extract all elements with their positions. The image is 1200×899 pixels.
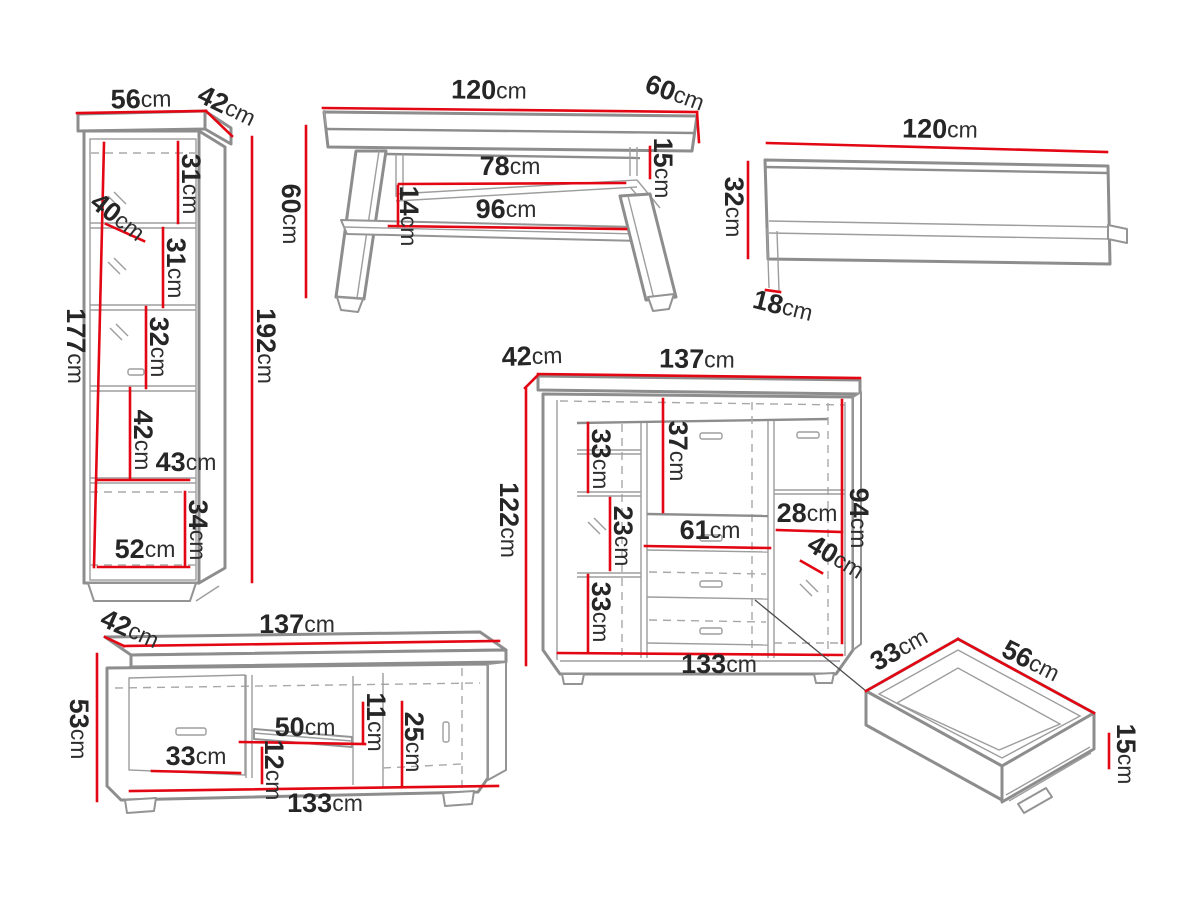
dim-unit: cm bbox=[304, 611, 335, 637]
dim-value: 37 bbox=[663, 421, 693, 451]
cabinet-section2-label: 31cm bbox=[161, 238, 191, 299]
dim-value: 33 bbox=[586, 429, 616, 459]
dim-unit: cm bbox=[185, 530, 211, 561]
dim-value: 120 bbox=[902, 113, 948, 144]
dim-unit: cm bbox=[496, 527, 522, 558]
dim-value: 120 bbox=[451, 74, 497, 105]
diagram-page: 56cm 42cm 192cm 177cm 40cm 31cm 31cm 32c… bbox=[0, 0, 1200, 899]
table-shelf-gap-label: 14cm bbox=[394, 186, 424, 247]
sideboard-left-top-label: 33cm bbox=[586, 429, 616, 490]
cabinet-plinth-side bbox=[196, 586, 219, 601]
dim-value: 60 bbox=[276, 184, 306, 214]
dim-unit: cm bbox=[710, 517, 741, 543]
dim-value: 56 bbox=[110, 84, 141, 115]
cabinet-interior-height-label: 177cm bbox=[61, 308, 91, 384]
dim-value: 53 bbox=[64, 699, 94, 729]
dim-value: 42 bbox=[128, 410, 158, 440]
dim-value: 137 bbox=[659, 343, 705, 374]
dim-value: 96 bbox=[476, 194, 506, 224]
table-width-label: 120cm bbox=[451, 74, 527, 105]
dim-unit: cm bbox=[506, 196, 537, 222]
tvstand-width-label: 137cm bbox=[259, 609, 335, 639]
dim-unit: cm bbox=[665, 451, 691, 482]
table-upper-shelf-label: 78cm bbox=[480, 151, 541, 181]
cabinet-plinth bbox=[88, 583, 196, 601]
table-top-gap-label: 15cm bbox=[648, 138, 678, 199]
table-depth-label: 60cm bbox=[641, 69, 708, 118]
dimension-line bbox=[399, 183, 625, 184]
dim-unit: cm bbox=[846, 518, 872, 549]
dim-unit: cm bbox=[650, 168, 676, 199]
dim-unit: cm bbox=[588, 612, 614, 643]
tv-stand-diagram: 42cm 137cm 53cm 33cm 50cm 11cm 25cm 12cm… bbox=[64, 603, 506, 818]
drawer-diagram: 33cm 56cm 15cm bbox=[865, 621, 1141, 813]
dim-unit: cm bbox=[721, 207, 747, 238]
dim-unit: cm bbox=[807, 500, 838, 526]
tvstand-right-section-label: 25cm bbox=[399, 712, 429, 773]
sideboard-interior-width-label: 133cm bbox=[681, 649, 757, 679]
dim-unit: cm bbox=[510, 153, 541, 179]
dim-unit: cm bbox=[145, 536, 176, 562]
cabinet-interior-width-label: 43cm bbox=[156, 447, 217, 477]
sideboard-left-bottom-label: 33cm bbox=[586, 582, 616, 643]
dim-unit: cm bbox=[401, 742, 427, 773]
sideboard-diagram: 42cm 137cm 122cm 33cm 37cm 23cm 61cm 28c… bbox=[494, 340, 874, 684]
tvstand-height-label: 53cm bbox=[64, 699, 94, 760]
cabinet-top-front bbox=[78, 111, 205, 131]
dim-value: 31 bbox=[161, 238, 191, 268]
dim-value: 28 bbox=[777, 498, 807, 528]
sideboard-right-shelf-label: 28cm bbox=[777, 498, 838, 528]
cabinet-bottom-width-label: 52cm bbox=[115, 534, 176, 564]
dim-value: 133 bbox=[681, 649, 726, 679]
wall-shelf-diagram: 120cm 32cm 18cm bbox=[719, 113, 1127, 328]
dim-value: 25 bbox=[399, 712, 429, 742]
sideboard-height-label: 122cm bbox=[494, 482, 524, 558]
handle bbox=[443, 722, 449, 742]
cabinet-section1-label: 31cm bbox=[176, 154, 206, 215]
dim-value: 33 bbox=[166, 741, 196, 771]
tvstand-side bbox=[488, 662, 506, 780]
cabinet-section4-label: 42cm bbox=[128, 410, 158, 471]
dim-unit: cm bbox=[396, 216, 422, 247]
dim-value: 78 bbox=[480, 151, 510, 181]
cabinet-height-label: 192cm bbox=[251, 308, 281, 384]
dim-value: 137 bbox=[259, 609, 304, 639]
dim-unit: cm bbox=[261, 770, 287, 801]
dimension-line-width bbox=[767, 143, 1107, 152]
dim-unit: cm bbox=[186, 449, 217, 475]
dim-value: 15 bbox=[648, 138, 678, 168]
dim-value: 122 bbox=[494, 482, 524, 527]
tvstand-foot bbox=[125, 798, 156, 813]
sideboard-depth-label: 42cm bbox=[501, 340, 563, 372]
tvstand-shelf-width-label: 50cm bbox=[275, 712, 336, 742]
dim-unit: cm bbox=[704, 346, 735, 373]
sideboard-center-top-label: 37cm bbox=[663, 421, 693, 482]
dim-unit: cm bbox=[130, 440, 156, 471]
dim-unit: cm bbox=[146, 347, 172, 378]
dim-value: 34 bbox=[183, 500, 213, 530]
dim-value: 32 bbox=[719, 177, 749, 207]
dim-unit: cm bbox=[610, 536, 636, 567]
dim-unit: cm bbox=[66, 729, 92, 760]
dim-value: 32 bbox=[144, 317, 174, 347]
dim-unit: cm bbox=[332, 790, 363, 816]
dim-value: 31 bbox=[176, 154, 206, 184]
dim-unit: cm bbox=[531, 342, 563, 369]
table-right-leg bbox=[620, 194, 676, 300]
shelf-right-tab bbox=[1108, 225, 1127, 243]
tvstand-interior-width-label: 133cm bbox=[287, 788, 363, 818]
dim-unit: cm bbox=[178, 184, 204, 215]
dim-unit: cm bbox=[253, 353, 279, 384]
dim-value: 12 bbox=[259, 740, 289, 770]
cabinet-diagram: 56cm 42cm 192cm 177cm 40cm 31cm 31cm 32c… bbox=[61, 79, 281, 601]
dim-value: 14 bbox=[394, 186, 424, 216]
tvstand-gap-top-label: 11cm bbox=[361, 692, 391, 751]
dim-value: 133 bbox=[287, 788, 332, 818]
dim-value: 52 bbox=[115, 534, 145, 564]
tvstand-gap-bottom-label: 12cm bbox=[259, 740, 289, 801]
dim-unit: cm bbox=[140, 85, 171, 112]
shelf-back-panel bbox=[765, 160, 1110, 264]
sideboard-left-middle-label: 23cm bbox=[608, 506, 638, 567]
dim-value: 42 bbox=[501, 341, 532, 372]
dim-unit: cm bbox=[363, 721, 389, 752]
sideboard-interior-height-label: 94cm bbox=[844, 488, 874, 549]
shelf-depth-label: 18cm bbox=[750, 284, 816, 328]
sideboard-niche-width-label: 61cm bbox=[680, 515, 741, 545]
cabinet-width-label: 56cm bbox=[110, 83, 171, 114]
handle bbox=[700, 433, 722, 439]
coffee-table-diagram: 120cm 60cm 60cm 15cm 78cm 96cm 14cm bbox=[276, 69, 709, 312]
handle bbox=[176, 728, 206, 735]
sideboard-foot bbox=[814, 673, 834, 683]
dim-value: 33 bbox=[586, 582, 616, 612]
table-right-foot bbox=[648, 294, 674, 311]
dim-unit: cm bbox=[726, 651, 757, 677]
table-height-label: 60cm bbox=[276, 184, 306, 245]
shelf-width-label: 120cm bbox=[902, 113, 978, 144]
dim-value: 23 bbox=[608, 506, 638, 536]
sideboard-width-label: 137cm bbox=[659, 343, 735, 374]
handle bbox=[700, 628, 722, 634]
dim-unit: cm bbox=[163, 268, 189, 299]
furniture-dimensions-diagram: 56cm 42cm 192cm 177cm 40cm 31cm 31cm 32c… bbox=[0, 0, 1200, 899]
dim-value: 50 bbox=[275, 712, 305, 742]
drawer-slide-tab bbox=[1018, 788, 1052, 813]
tvstand-left-door-label: 33cm bbox=[166, 741, 227, 771]
dim-unit: cm bbox=[196, 743, 227, 769]
dim-value: 61 bbox=[680, 515, 710, 545]
dim-unit: cm bbox=[278, 214, 304, 245]
cabinet-bottom-section-label: 34cm bbox=[183, 500, 213, 561]
tvstand-foot bbox=[443, 791, 474, 806]
dim-unit: cm bbox=[63, 353, 89, 384]
dim-unit: cm bbox=[496, 77, 527, 104]
dim-value: 11 bbox=[361, 692, 391, 721]
dim-value: 177 bbox=[61, 308, 91, 353]
dim-value: 15 bbox=[1111, 724, 1141, 754]
dimension-line-depth bbox=[525, 375, 538, 388]
dim-value: 94 bbox=[844, 488, 874, 518]
handle bbox=[797, 432, 819, 438]
dim-value: 192 bbox=[251, 308, 281, 353]
dim-unit: cm bbox=[780, 293, 816, 326]
cabinet-section3-label: 32cm bbox=[144, 317, 174, 378]
dimension-line-depth bbox=[697, 112, 699, 142]
dim-unit: cm bbox=[305, 714, 336, 740]
handle bbox=[128, 369, 144, 375]
dim-unit: cm bbox=[588, 459, 614, 490]
handle bbox=[700, 581, 722, 587]
table-left-foot bbox=[337, 297, 363, 312]
sideboard-foot bbox=[562, 674, 584, 684]
dim-unit: cm bbox=[947, 116, 978, 143]
dim-value: 43 bbox=[156, 447, 186, 477]
table-lower-shelf-label: 96cm bbox=[476, 194, 537, 224]
dim-unit: cm bbox=[1113, 754, 1139, 785]
shelf-height-label: 32cm bbox=[719, 177, 749, 238]
drawer-height-label: 15cm bbox=[1111, 724, 1141, 785]
